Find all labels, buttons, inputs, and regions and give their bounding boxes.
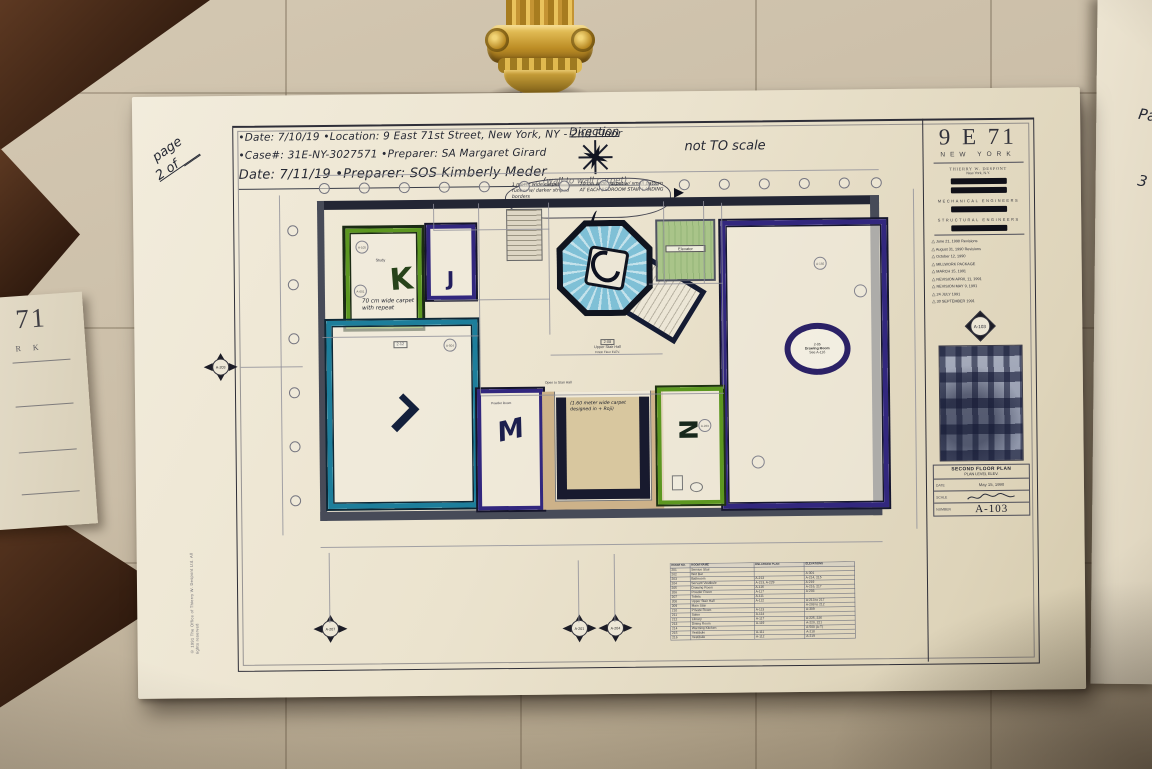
- fragment-rule: [16, 403, 74, 408]
- number-label: NUMBER: [934, 506, 954, 512]
- letter-k: K: [388, 261, 414, 298]
- drawing-room-oval-mark: 2-05 Drawing Room See A-116: [784, 322, 851, 375]
- room-k-note: 70 cm wide carpet with repeat: [362, 298, 418, 313]
- redaction-bar: [950, 186, 1006, 193]
- revision-entry: △ August 31, 1990 Revisions: [931, 245, 1033, 252]
- plan: Elevator A-105 A-601 Study K 70 cm wide …: [303, 189, 897, 535]
- title-block: 9 E 71 NEW YORK THIERRY W. DESPONT New Y…: [922, 118, 1038, 662]
- letter-n: N: [673, 419, 702, 440]
- row-grid-bubble: [288, 333, 299, 344]
- letter-j: J: [447, 267, 455, 291]
- compass-rose-icon: [576, 138, 614, 176]
- revision-entry: △ June 21, 1990 Revisions: [931, 238, 1033, 245]
- project-city: NEW YORK: [923, 151, 1032, 159]
- column-grid-bubble: [719, 179, 730, 190]
- ornament-volute-left: [485, 28, 509, 52]
- left-room-tag: 2-12: [393, 341, 407, 348]
- fragment-handwriting-1: Pa: [1137, 105, 1152, 126]
- column-grid-bubble: [519, 181, 530, 192]
- column-grid-bubble: [839, 177, 850, 188]
- fragment-rule: [22, 490, 80, 495]
- drawing-number: A-103: [954, 503, 1029, 516]
- revision-entry: △ 30 SEPTEMBER 1991: [932, 298, 1034, 305]
- column-grid-bubble: [359, 182, 370, 193]
- project-title: 9 E 71: [923, 124, 1032, 151]
- not-to-scale-note: not TO scale: [684, 138, 765, 154]
- architect-city: New York, N.Y.: [924, 171, 1033, 176]
- column-grid-bubble: [759, 178, 770, 189]
- powder-room-label: Powder Room: [491, 401, 511, 405]
- scale-label: SCALE: [934, 494, 954, 500]
- fragment-title-text: 71: [14, 302, 47, 335]
- blueprint-sheet: •Date: 7/10/19 •Location: 9 East 71st St…: [132, 87, 1086, 699]
- section-marker: A-207: [313, 621, 347, 637]
- elevator-label: Elevator: [665, 245, 705, 252]
- north-wall: [317, 195, 879, 210]
- structural-heading: STRUCTURAL ENGINEERS: [924, 217, 1033, 223]
- service-stair: [506, 209, 543, 261]
- redaction-bar: [951, 224, 1007, 231]
- direction-label: Direction: [569, 125, 619, 139]
- letter-l: L: [374, 385, 430, 441]
- room-n: A-223 N: [657, 387, 724, 505]
- redaction-bar: [951, 205, 1007, 212]
- column-grid-bubble: [799, 178, 810, 189]
- stair-carpet-note: (1.60 meter wide carpet designed in + Ro…: [570, 401, 640, 413]
- date-label: DATE: [934, 482, 954, 488]
- mechanical-heading: MECHANICAL ENGINEERS: [924, 198, 1033, 204]
- room-tag-circle: A-504: [443, 339, 456, 352]
- page-label: page 2 of ___: [143, 130, 202, 185]
- sheet-reference-marker: A-103: [965, 311, 995, 341]
- section-marker: A-201: [562, 620, 596, 636]
- fragment-rule: [13, 359, 71, 364]
- section-marker: A-203: [204, 359, 238, 375]
- column-grid-bubble: [559, 180, 570, 191]
- open-to-label: Open to Stair Hall: [545, 380, 572, 385]
- under-sheet-fragment: 71 R K: [0, 292, 98, 533]
- column-grid-bubble: [439, 182, 450, 193]
- fixture: [672, 475, 683, 490]
- revision-entry: △ 24 JULY 1991: [932, 290, 1034, 297]
- row-grid-bubble: [290, 495, 301, 506]
- photo-scene: 71 R K Pa 3 •Date: 7/10/19 •Location: 9 …: [0, 0, 1152, 769]
- plan-line: [434, 299, 550, 301]
- row-grid-bubble: [289, 441, 300, 452]
- room-m: Powder Room M: [477, 389, 544, 511]
- room-j: J: [426, 224, 476, 300]
- study-label: Study: [376, 258, 386, 263]
- letter-m: M: [494, 412, 527, 448]
- column-grid-bubble: [319, 183, 330, 194]
- column-grid-bubble: [871, 177, 882, 188]
- redaction-bar: [950, 177, 1006, 184]
- fragment-handwriting-2: 3: [1136, 171, 1149, 190]
- ornament-volute-right: [571, 28, 595, 52]
- row-grid-bubble: [289, 387, 300, 398]
- fragment-rule: [19, 448, 77, 453]
- room-k: A-105 A-601 Study K 70 cm wide carpet wi…: [345, 228, 422, 329]
- signature-scribble: [954, 491, 1029, 502]
- column-grid-bubble: [639, 180, 650, 191]
- column-grid-bubble: [479, 181, 490, 192]
- room-tag-circle: [752, 455, 765, 468]
- room-tag-circle: A-105: [355, 241, 368, 254]
- fragment-city-text: R K: [15, 342, 44, 353]
- room-tag-circle: A-192: [814, 257, 827, 270]
- fixture: [690, 482, 703, 492]
- plan-line: [548, 203, 550, 335]
- drawing-room: A-192 2-05 Drawing Room See A-116: [720, 219, 889, 509]
- drawing-subtitle: PLAN LEVEL ELEV.: [964, 472, 998, 478]
- title-block-footer: SECOND FLOOR PLAN PLAN LEVEL ELEV. DATE …: [933, 464, 1031, 517]
- revision-entry: △ MILLWORK PACKAGE: [932, 260, 1034, 267]
- column-grid-bubble: [679, 179, 690, 190]
- schedule-row: 216VestibuleA-112A-219: [671, 634, 856, 640]
- column-grid-bubble: [399, 182, 410, 193]
- revision-entry: △ October 12, 1990: [932, 253, 1034, 260]
- date-value: May 15, 1990: [954, 482, 1029, 488]
- section-marker: A-204: [598, 620, 632, 636]
- row-grid-bubble: [287, 225, 298, 236]
- copyright-text: © 1991 The Office of Thierry W. Despont …: [189, 544, 200, 654]
- revision-entry: △ REVISION APRIL 11, 1991: [932, 275, 1034, 282]
- revision-list: △ June 21, 1990 Revisions △ August 31, 1…: [924, 238, 1034, 305]
- drawing-room-label: 2-05 Drawing Room See A-116: [805, 343, 830, 355]
- revision-entry: △ MARCH 15, 1991: [932, 268, 1034, 275]
- revision-entry: △ REVISION MAY 9, 1991: [932, 283, 1034, 290]
- plan-line: [551, 353, 663, 355]
- u-stair: (1.60 meter wide carpet designed in + Ro…: [542, 390, 664, 509]
- room-tag-circle: [854, 284, 867, 297]
- room-tag-circle: A-601: [354, 285, 367, 298]
- column-grid-bubble: [599, 180, 610, 191]
- gilded-ornament: [487, 0, 593, 104]
- left-room: 2-12 A-504 L: [326, 319, 479, 509]
- room-schedule-table: ROOM NO. ROOM NAME ENLARGED PLAN ELEVATI…: [670, 561, 857, 651]
- side-sheet-fragment: Pa 3: [1090, 0, 1152, 684]
- building-facade-image: [938, 345, 1023, 462]
- row-grid-bubble: [288, 279, 299, 290]
